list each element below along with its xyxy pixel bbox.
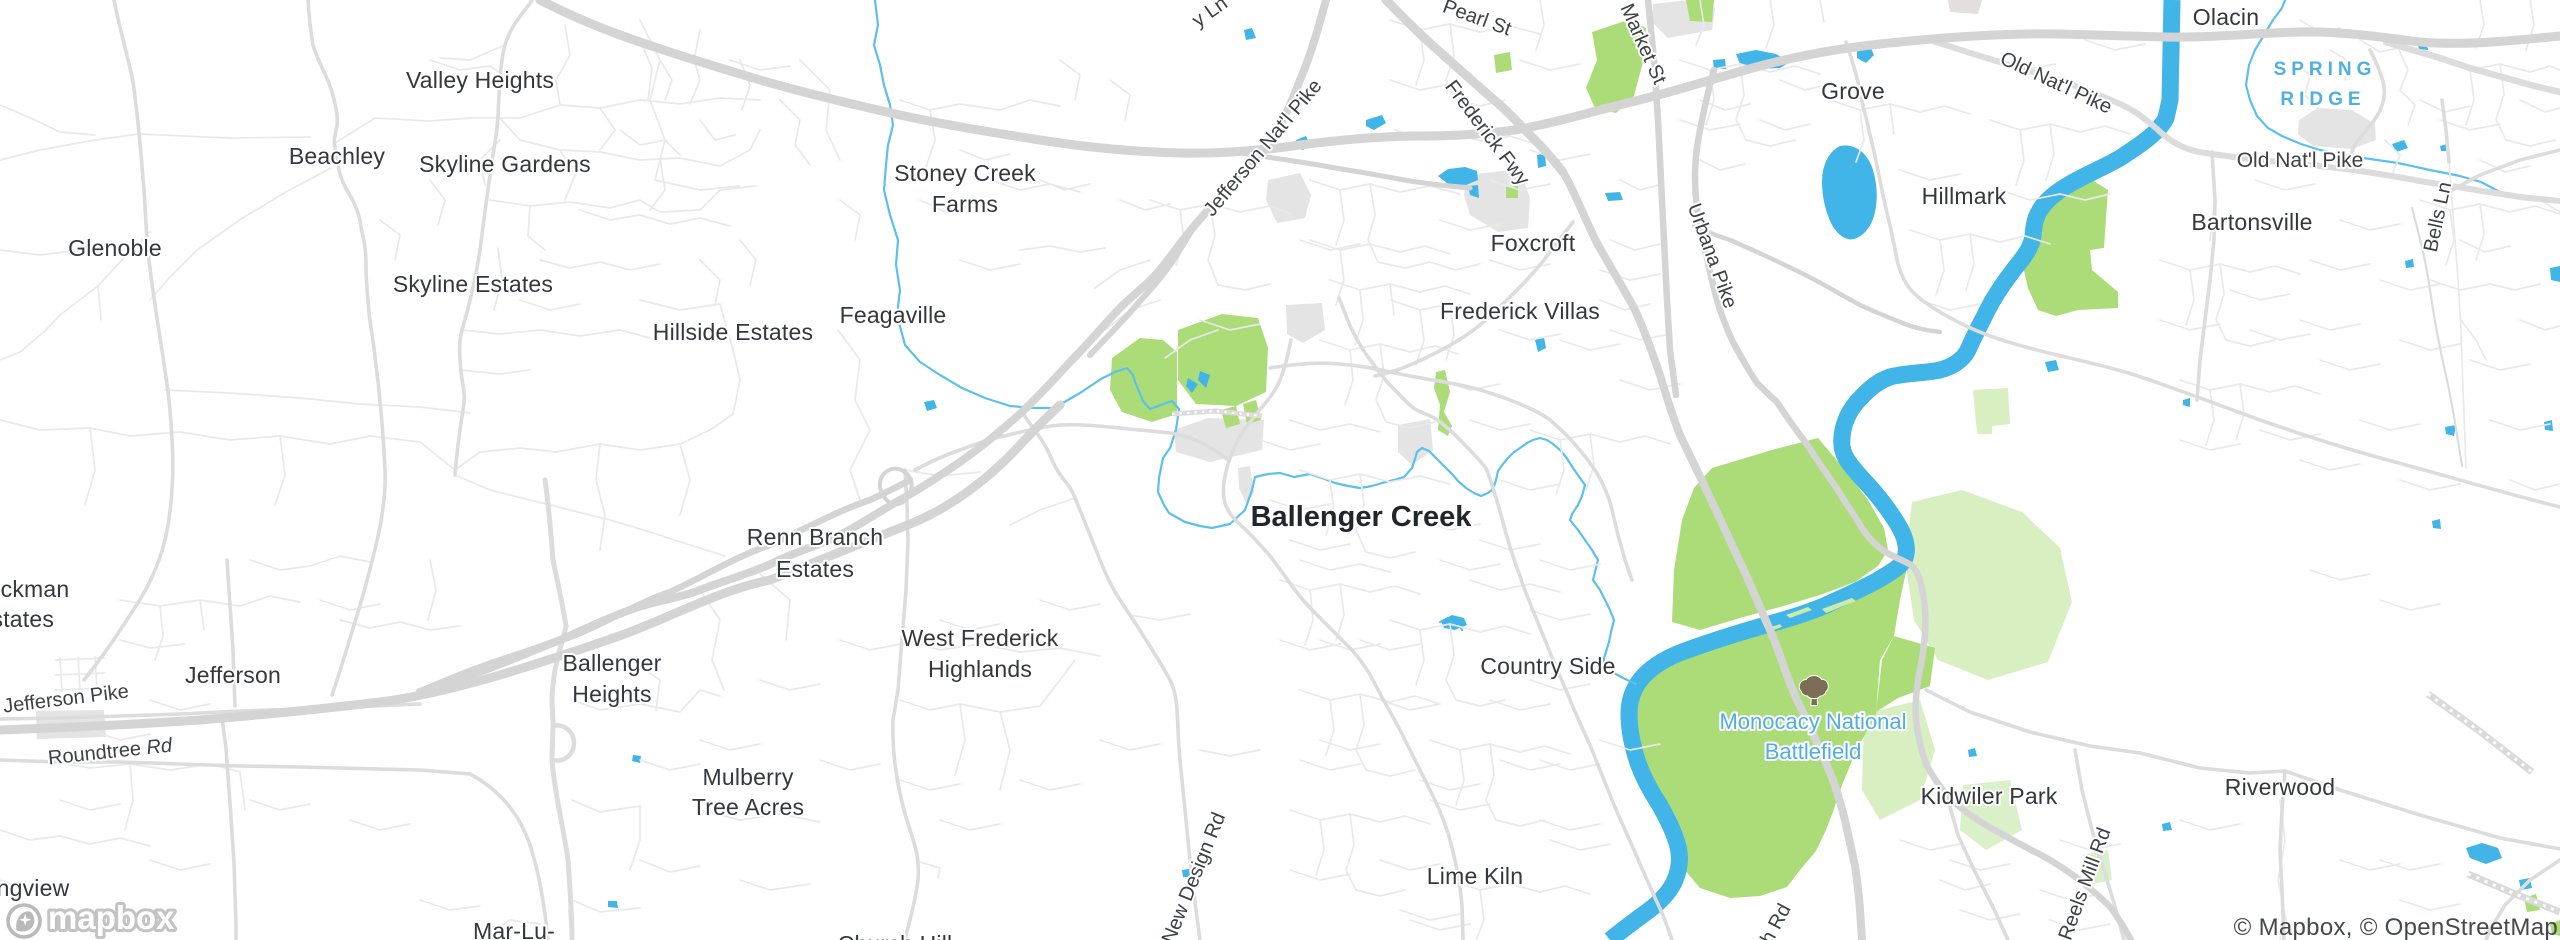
svg-text:Church Hill: Church Hill <box>838 931 953 940</box>
svg-text:Frederick Villas: Frederick Villas <box>1440 298 1600 324</box>
svg-text:Longview: Longview <box>0 875 70 901</box>
svg-text:Feagaville: Feagaville <box>840 302 947 328</box>
svg-text:Beachley: Beachley <box>289 143 386 169</box>
svg-text:Skyline Estates: Skyline Estates <box>393 271 553 297</box>
svg-text:Olacin: Olacin <box>2193 4 2259 30</box>
svg-text:Hillside Estates: Hillside Estates <box>653 319 813 345</box>
svg-text:Country Side: Country Side <box>1480 653 1615 679</box>
svg-text:© Mapbox, © OpenStreetMap: © Mapbox, © OpenStreetMap <box>2234 914 2558 940</box>
svg-text:Jefferson: Jefferson <box>185 662 281 688</box>
svg-text:Hillmark: Hillmark <box>1922 183 2007 209</box>
svg-text:Skyline Gardens: Skyline Gardens <box>419 151 591 177</box>
svg-text:Lime Kiln: Lime Kiln <box>1427 863 1523 889</box>
svg-text:Valley Heights: Valley Heights <box>406 67 554 93</box>
svg-text:Riverwood: Riverwood <box>2225 774 2335 800</box>
svg-text:Mar-Lu-: Mar-Lu- <box>473 918 555 940</box>
svg-text:mapbox: mapbox <box>48 899 175 936</box>
svg-text:Old Nat'l Pike: Old Nat'l Pike <box>2237 149 2364 172</box>
svg-text:Bartonsville: Bartonsville <box>2191 209 2312 235</box>
svg-text:Kidwiler Park: Kidwiler Park <box>1921 783 2058 809</box>
svg-text:Ballenger Creek: Ballenger Creek <box>1251 501 1473 533</box>
svg-text:Grove: Grove <box>1821 78 1885 104</box>
svg-text:Glenoble: Glenoble <box>68 235 162 261</box>
svg-text:Foxcroft: Foxcroft <box>1491 230 1576 256</box>
